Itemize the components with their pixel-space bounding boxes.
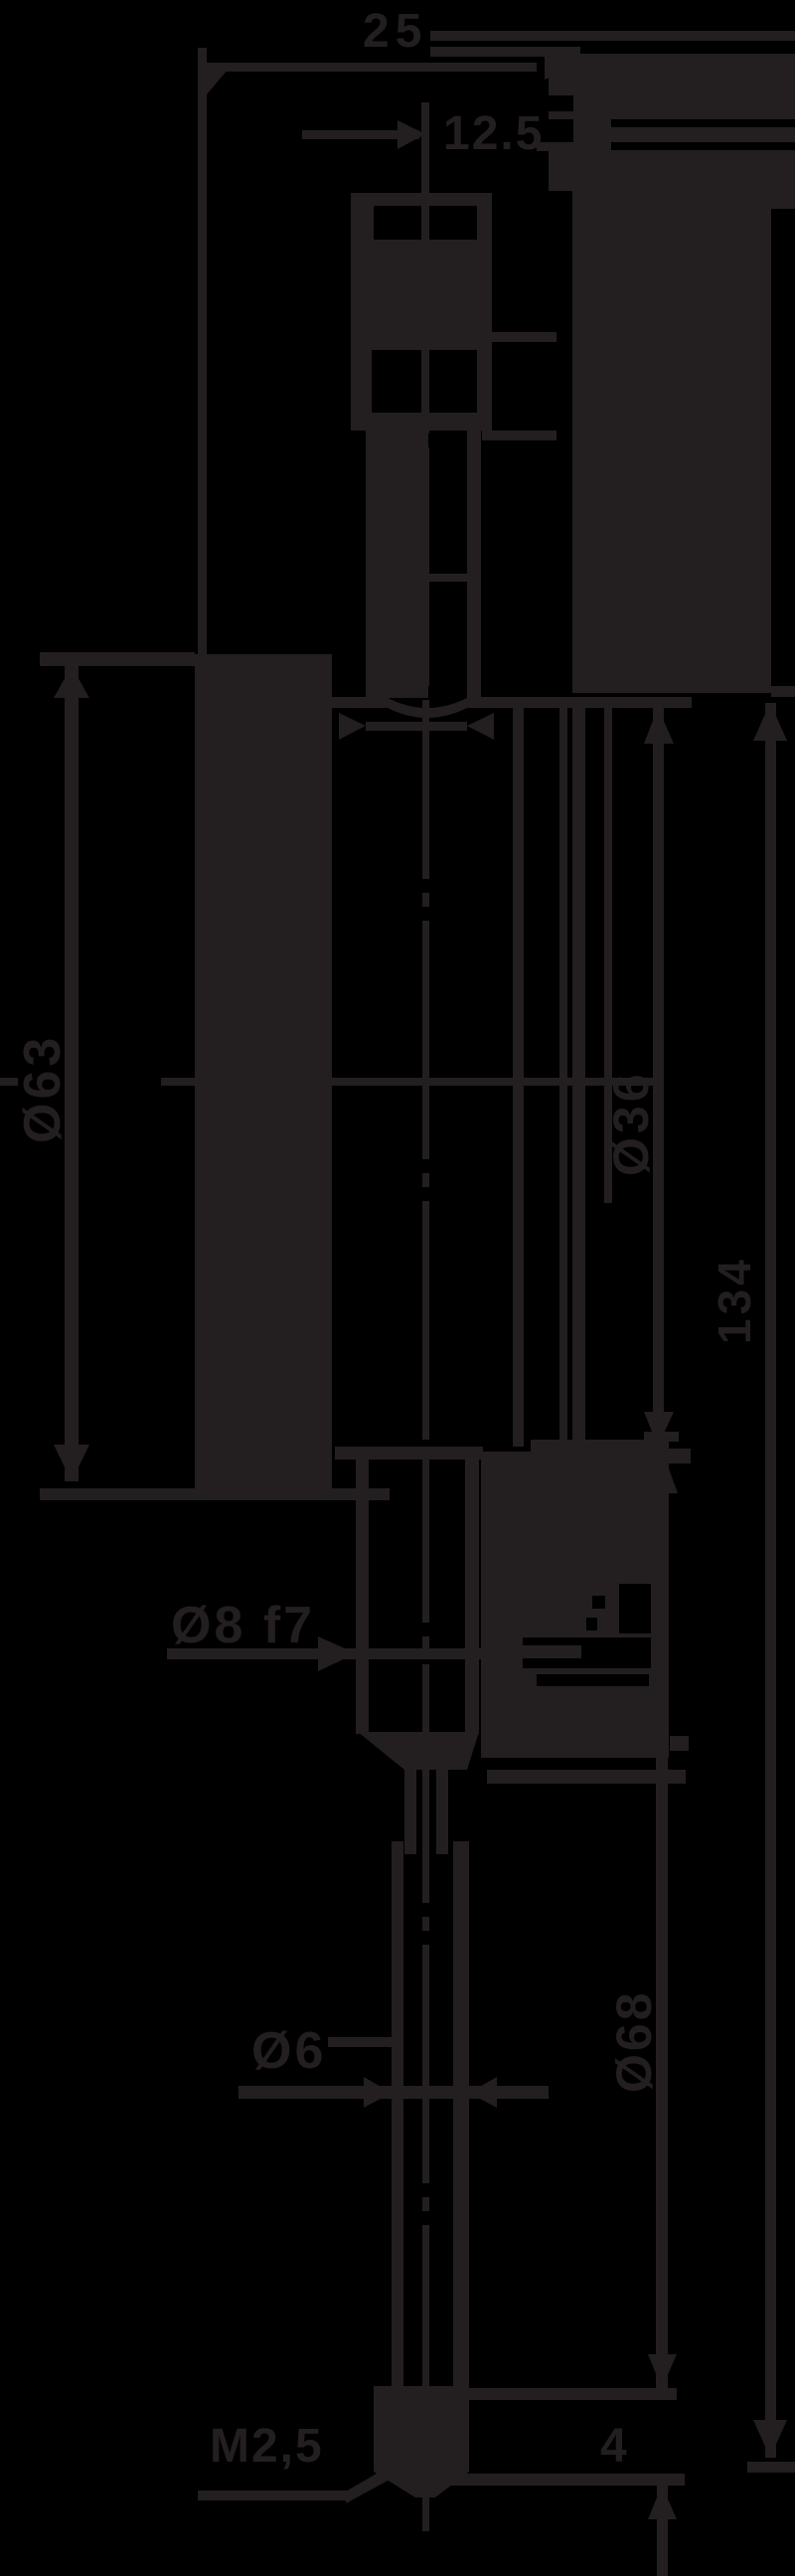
svg-text:M2,5: M2,5 — [210, 2420, 324, 2473]
svg-text:Ø36: Ø36 — [603, 1070, 659, 1176]
svg-text:Ø6: Ø6 — [251, 2022, 326, 2080]
svg-text:Ø68: Ø68 — [606, 1989, 662, 2093]
svg-text:134: 134 — [709, 1256, 760, 1344]
svg-text:4: 4 — [600, 2420, 627, 2473]
svg-text:Ø8 f7: Ø8 f7 — [171, 1597, 315, 1654]
svg-text:25: 25 — [363, 5, 427, 58]
svg-text:Ø63: Ø63 — [14, 1034, 72, 1143]
svg-text:12.5: 12.5 — [443, 107, 544, 160]
